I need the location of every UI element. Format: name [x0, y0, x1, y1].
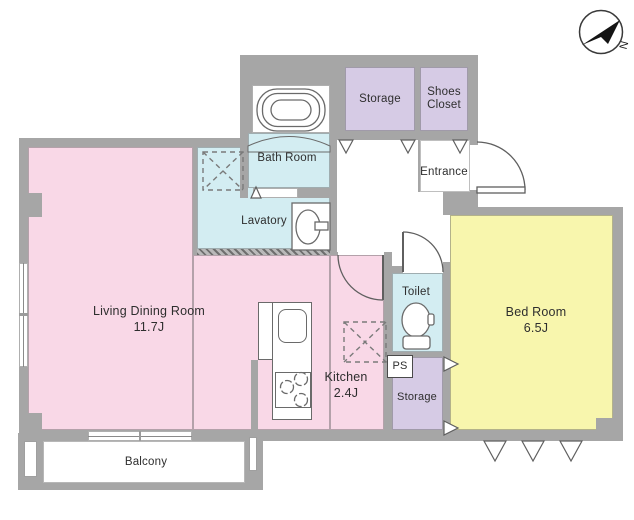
bedroom-name: Bed Room	[466, 304, 606, 320]
balcony-bottom-rail	[18, 483, 263, 490]
kitchen-name: Kitchen	[306, 369, 386, 385]
label-lavatory: Lavatory	[214, 215, 314, 228]
wall-pillar	[28, 193, 42, 217]
label-kitchen: Kitchen 2.4J	[306, 369, 386, 401]
label-bathroom: Bath Room	[247, 152, 327, 165]
window-balcony-divider	[139, 431, 141, 441]
bedroom-size: 6.5J	[466, 320, 606, 336]
label-toilet: Toilet	[386, 286, 446, 299]
wall-bath-door-right	[298, 188, 330, 198]
hall-floor-toilet-vestibule	[392, 252, 443, 266]
label-storage-bottom: Storage	[387, 391, 447, 404]
label-entrance: Entrance	[404, 166, 484, 179]
label-storage-top: Storage	[340, 93, 420, 106]
wall-bedroom-corner-notch	[596, 418, 613, 430]
room-bath-tub-area	[252, 85, 330, 133]
window-left-divider	[19, 313, 28, 316]
label-living-dining: Living Dining Room 11.7J	[59, 303, 239, 335]
living-room-name: Living Dining Room	[59, 303, 239, 319]
hall-floor-connector	[418, 192, 443, 207]
lavatory-sliding-door	[197, 249, 330, 255]
compass-icon: N	[580, 11, 630, 54]
room-toilet	[392, 273, 443, 352]
compass-north-label: N	[616, 39, 630, 50]
label-balcony: Balcony	[96, 456, 196, 469]
balcony-left-post-slot	[24, 441, 37, 477]
label-shoes-closet: Shoes Closet	[420, 86, 468, 112]
wall-kitchen-bottom	[338, 430, 384, 441]
toilet-doorway	[403, 266, 443, 273]
wall-lavatory-left	[193, 147, 197, 255]
room-kitchen	[330, 255, 384, 430]
bedroom-vent-marks	[484, 441, 582, 461]
living-room-size: 11.7J	[59, 319, 239, 335]
room-living-dining	[28, 147, 193, 430]
floor-plan: N Living Dining Room 11.7J Kitchen 2.4J …	[0, 0, 634, 520]
hall-floor-lower	[337, 207, 443, 252]
balcony-right-post-slot	[249, 437, 257, 471]
label-bedroom: Bed Room 6.5J	[466, 304, 606, 336]
wall-step-bottom-left	[28, 413, 42, 430]
bedroom-doorway	[443, 215, 450, 262]
kitchen-sink	[278, 309, 307, 343]
label-pipe-space: PS	[387, 360, 413, 373]
wall-kitchen-stub	[251, 360, 258, 430]
kitchen-counter-side	[258, 302, 273, 360]
kitchen-size: 2.4J	[306, 385, 386, 401]
bathroom-door	[253, 188, 298, 198]
door-arc-entrance	[477, 142, 525, 193]
